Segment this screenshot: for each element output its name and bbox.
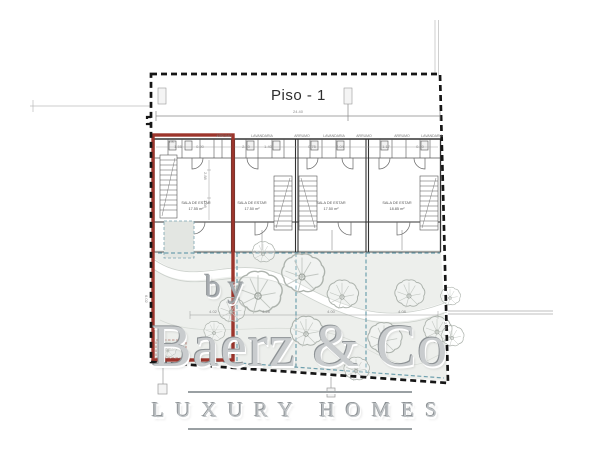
room-label: ARRUMO [216, 134, 232, 138]
room-label: ARRUMO [394, 134, 410, 138]
room-area: 18.85 m² [390, 207, 405, 211]
floorplan-image: Piso - 1 24.40 I.S. ARRUMO LAVANDARIA AR… [0, 0, 600, 450]
top-right-reference-lines [435, 20, 439, 75]
watermark-by: by [205, 268, 251, 305]
dimension-text: 0.90 [196, 144, 204, 149]
party-wall-3 [366, 139, 369, 252]
staircases [160, 155, 438, 230]
dimension-text: 2.04 [336, 144, 344, 149]
party-wall-2 [296, 139, 299, 252]
door-arc [192, 158, 203, 169]
room-label: LAVANDARIA [323, 134, 345, 138]
dimension-text: 1.98 [203, 200, 208, 208]
unit-room-label: SALA DE ESTAR 17.50 m² [316, 201, 345, 212]
staircase-icon [420, 176, 438, 230]
dimension-text: 1.17 [382, 144, 390, 149]
dimension-text: 1.55 [174, 144, 182, 149]
room-name: SALA DE ESTAR [316, 201, 345, 205]
room-name: SALA DE ESTAR [237, 201, 266, 205]
dimension-text: 2.88 [203, 172, 208, 180]
room-area: 17.50 m² [324, 207, 339, 211]
dimension-text: 6.02 [144, 295, 149, 303]
staircase-icon [299, 176, 317, 230]
dimension-text: 0.75 [308, 144, 316, 149]
watermark-rule-top [188, 391, 412, 393]
watermark-tagline: LUXURY HOMES [150, 398, 450, 423]
watermark-brand: Baerz & Co [130, 312, 470, 381]
floor-title: Piso - 1 [271, 87, 326, 104]
room-area: 17.50 m² [245, 207, 260, 211]
unit-room-label: SALA DE ESTAR 17.50 m² [237, 201, 266, 212]
dimension-text: 1.40 [264, 144, 272, 149]
dimension-text: 0.80 [416, 144, 424, 149]
staircase-icon [160, 155, 177, 218]
room-label: ARRUMO [356, 134, 372, 138]
unit-room-label: SALA DE ESTAR 18.85 m² [382, 201, 411, 212]
room-area: 17.55 m² [189, 207, 204, 211]
room-label: ARRUMO [294, 134, 310, 138]
dimension-text: 2.10 [242, 144, 250, 149]
room-name: SALA DE ESTAR [382, 201, 411, 205]
room-label: LAVANDARIA [251, 134, 273, 138]
column-marker [158, 88, 166, 104]
column-marker [344, 88, 352, 104]
overall-width-dimension: 24.40 [293, 109, 303, 114]
room-label: LAVANDARIA [421, 134, 443, 138]
staircase-icon [274, 176, 292, 230]
site-plan-drawing [0, 0, 600, 450]
watermark-rule-bottom [188, 428, 412, 430]
